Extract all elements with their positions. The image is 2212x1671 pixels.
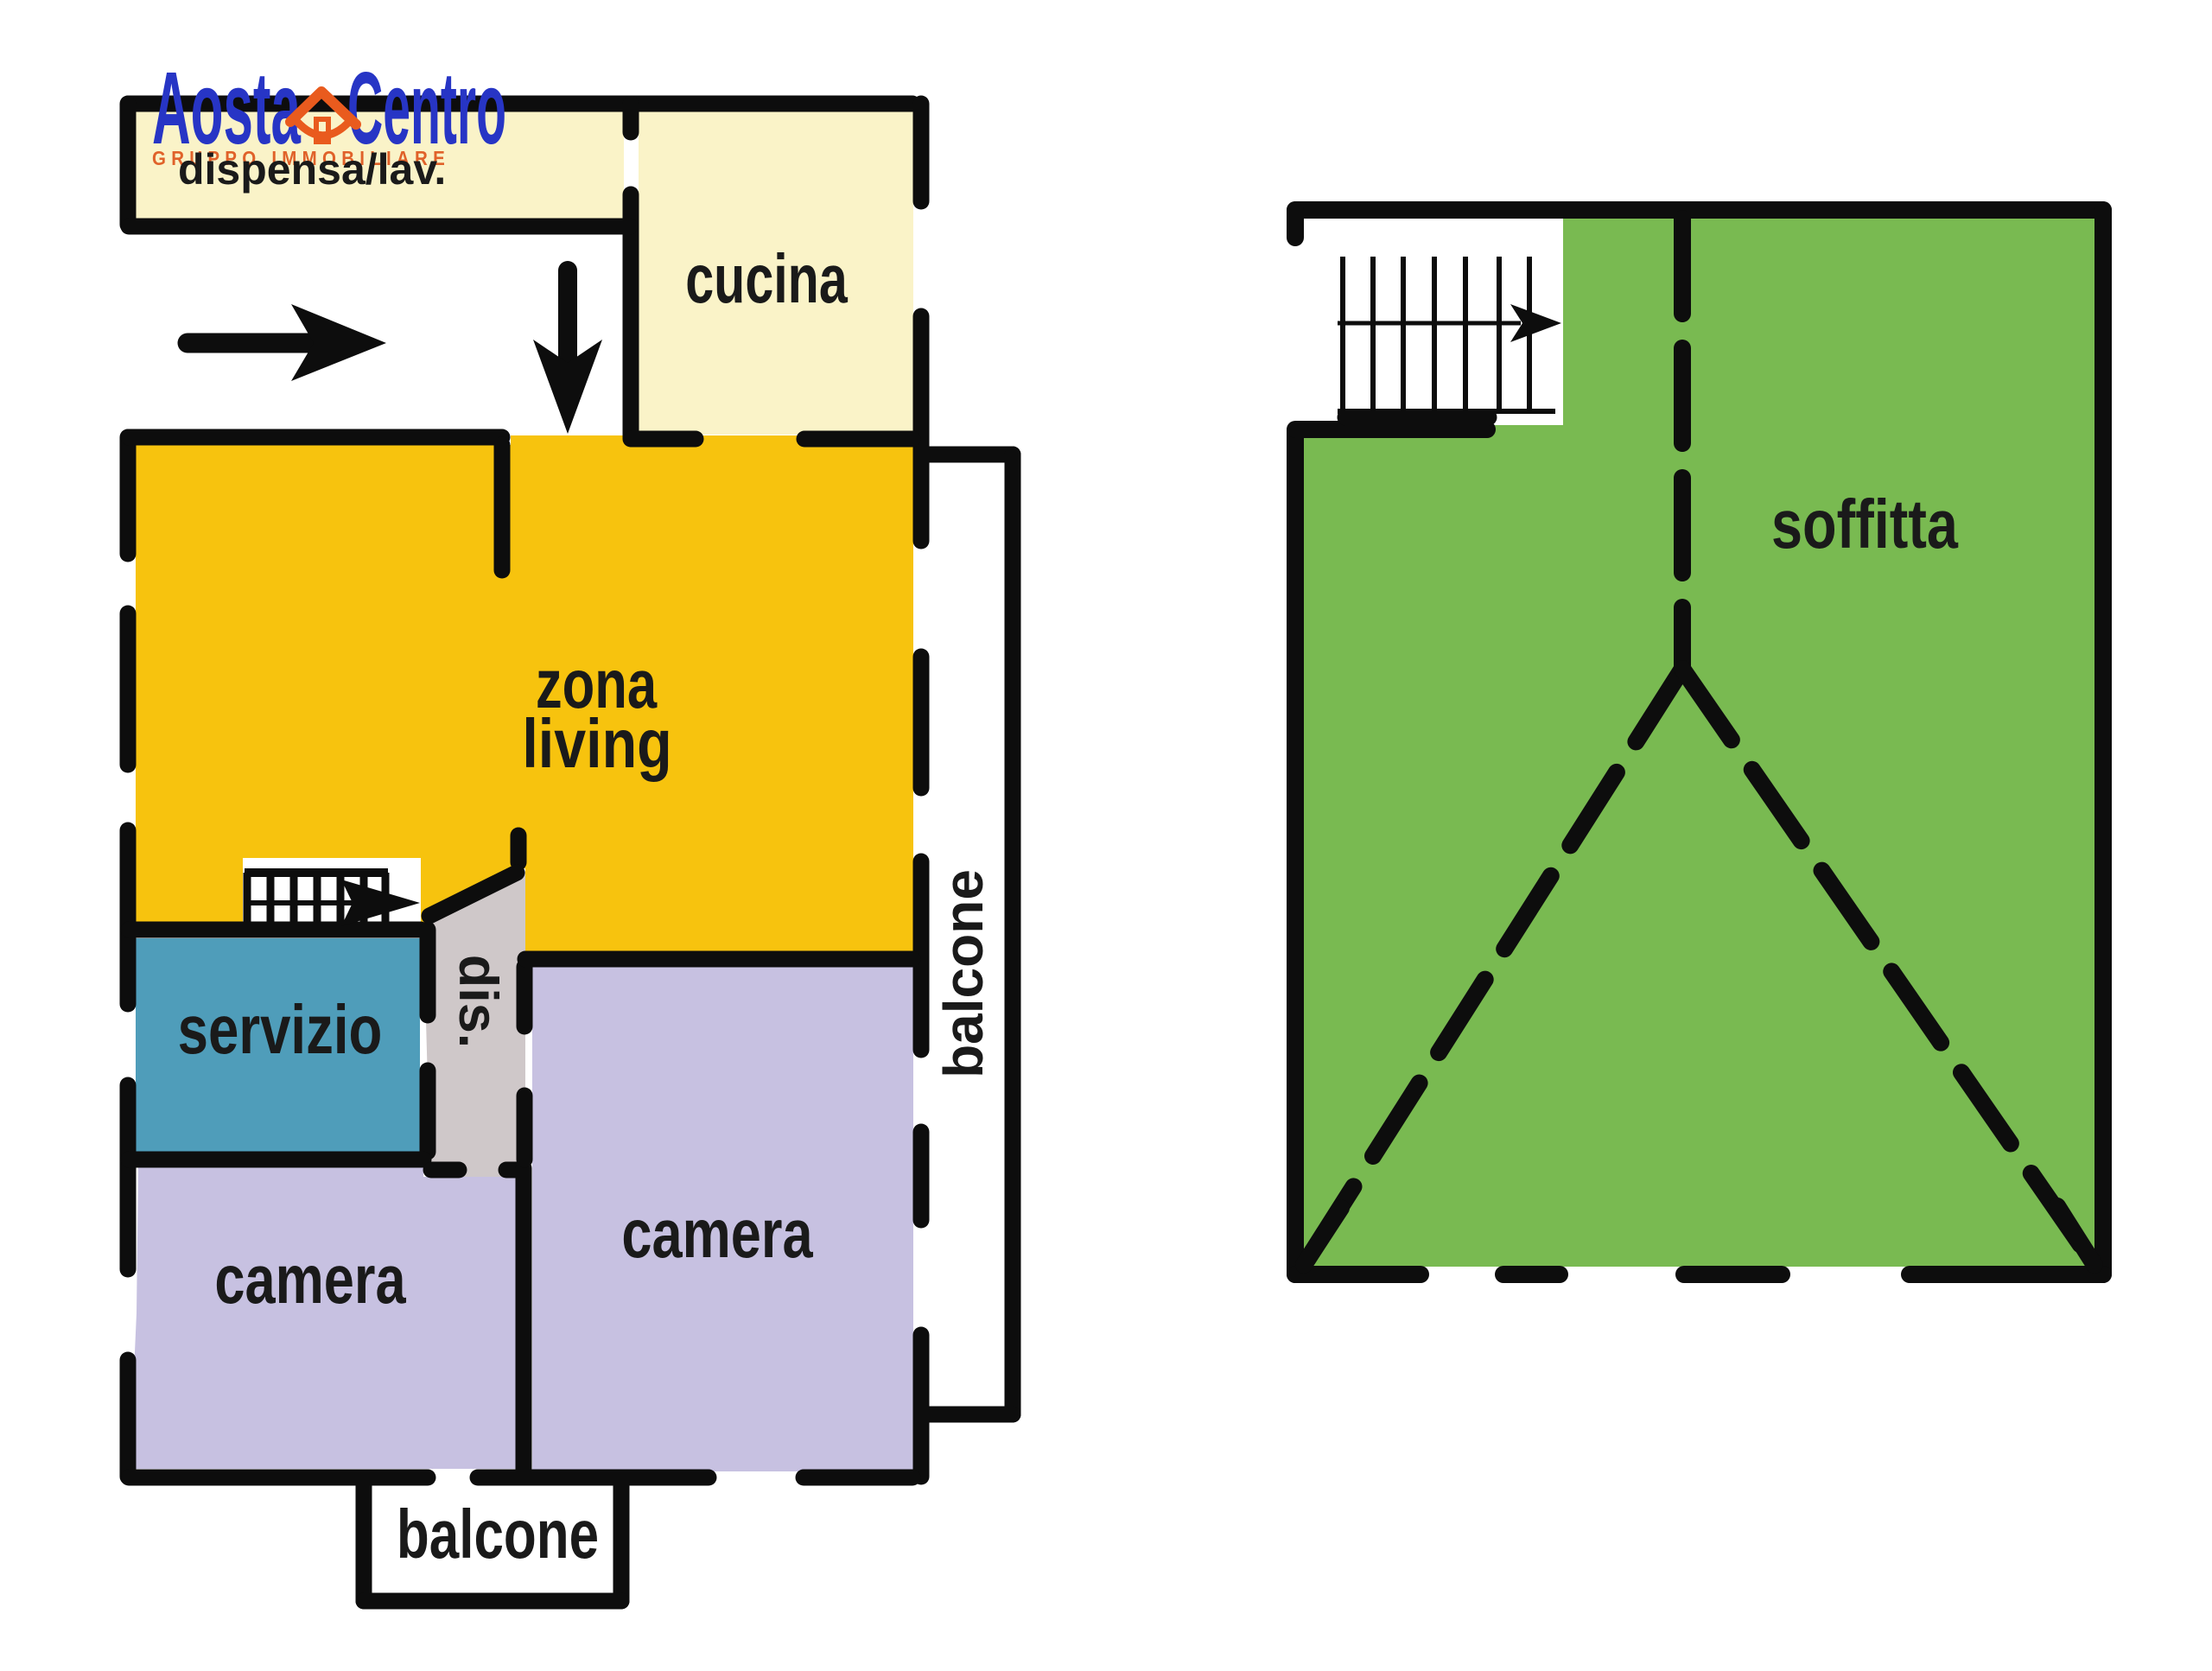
svg-text:balcone: balcone [932,869,995,1078]
svg-text:camera: camera [621,1196,813,1273]
svg-text:soffitta: soffitta [1771,486,1958,563]
svg-text:camera: camera [214,1242,406,1318]
svg-text:cucina: cucina [685,239,848,317]
svg-text:dispensa/lav.: dispensa/lav. [178,145,446,194]
svg-text:servizio: servizio [178,992,383,1069]
svg-text:dis.: dis. [448,955,508,1049]
svg-text:living: living [522,704,671,782]
svg-text:balcone: balcone [397,1496,599,1573]
